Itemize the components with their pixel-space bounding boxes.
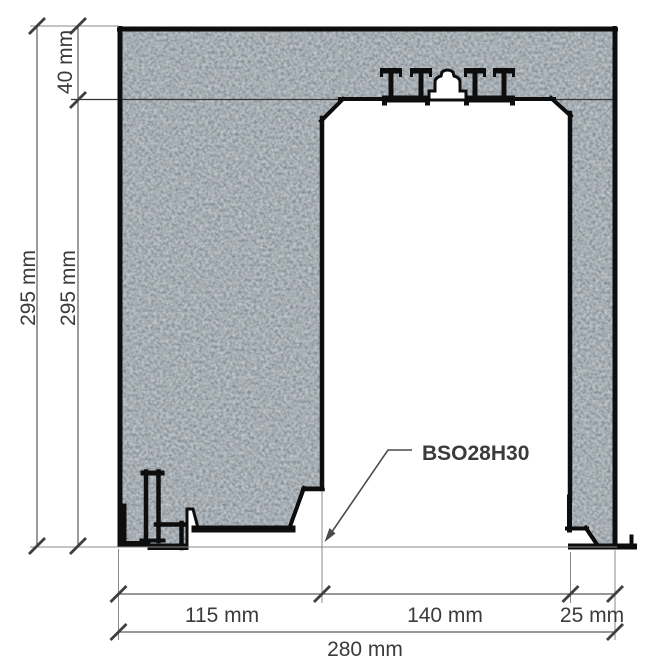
dim-label-280: 280 mm [327, 638, 403, 661]
technical-drawing: 295 mm 40 mm 295 mm 115 mm 140 mm 25 mm … [0, 0, 648, 671]
dim-label-25: 25 mm [560, 604, 624, 627]
drawing-canvas: 295 mm 40 mm 295 mm 115 mm 140 mm 25 mm … [0, 0, 648, 671]
wall-texture [100, 10, 648, 570]
dim-vertical-inner: 40 mm 295 mm [54, 18, 86, 554]
dim-horizontal-row1: 115 mm 140 mm 25 mm [111, 586, 625, 627]
dim-label-115: 115 mm [185, 604, 259, 627]
track-base-plate-right [464, 96, 515, 103]
product-callout: BSO28H30 [325, 442, 530, 542]
product-label: BSO28H30 [422, 442, 529, 465]
dim-label-40: 40 mm [54, 30, 77, 94]
dim-horizontal-row2: 280 mm [111, 624, 624, 661]
dim-label-295-outer: 295 mm [17, 250, 40, 326]
leader-line [327, 450, 412, 539]
dim-label-295-inner: 295 mm [57, 250, 80, 326]
dim-label-140: 140 mm [407, 604, 483, 627]
dim-vertical-outer: 295 mm [17, 18, 45, 554]
track-base-plate-left [382, 96, 430, 103]
